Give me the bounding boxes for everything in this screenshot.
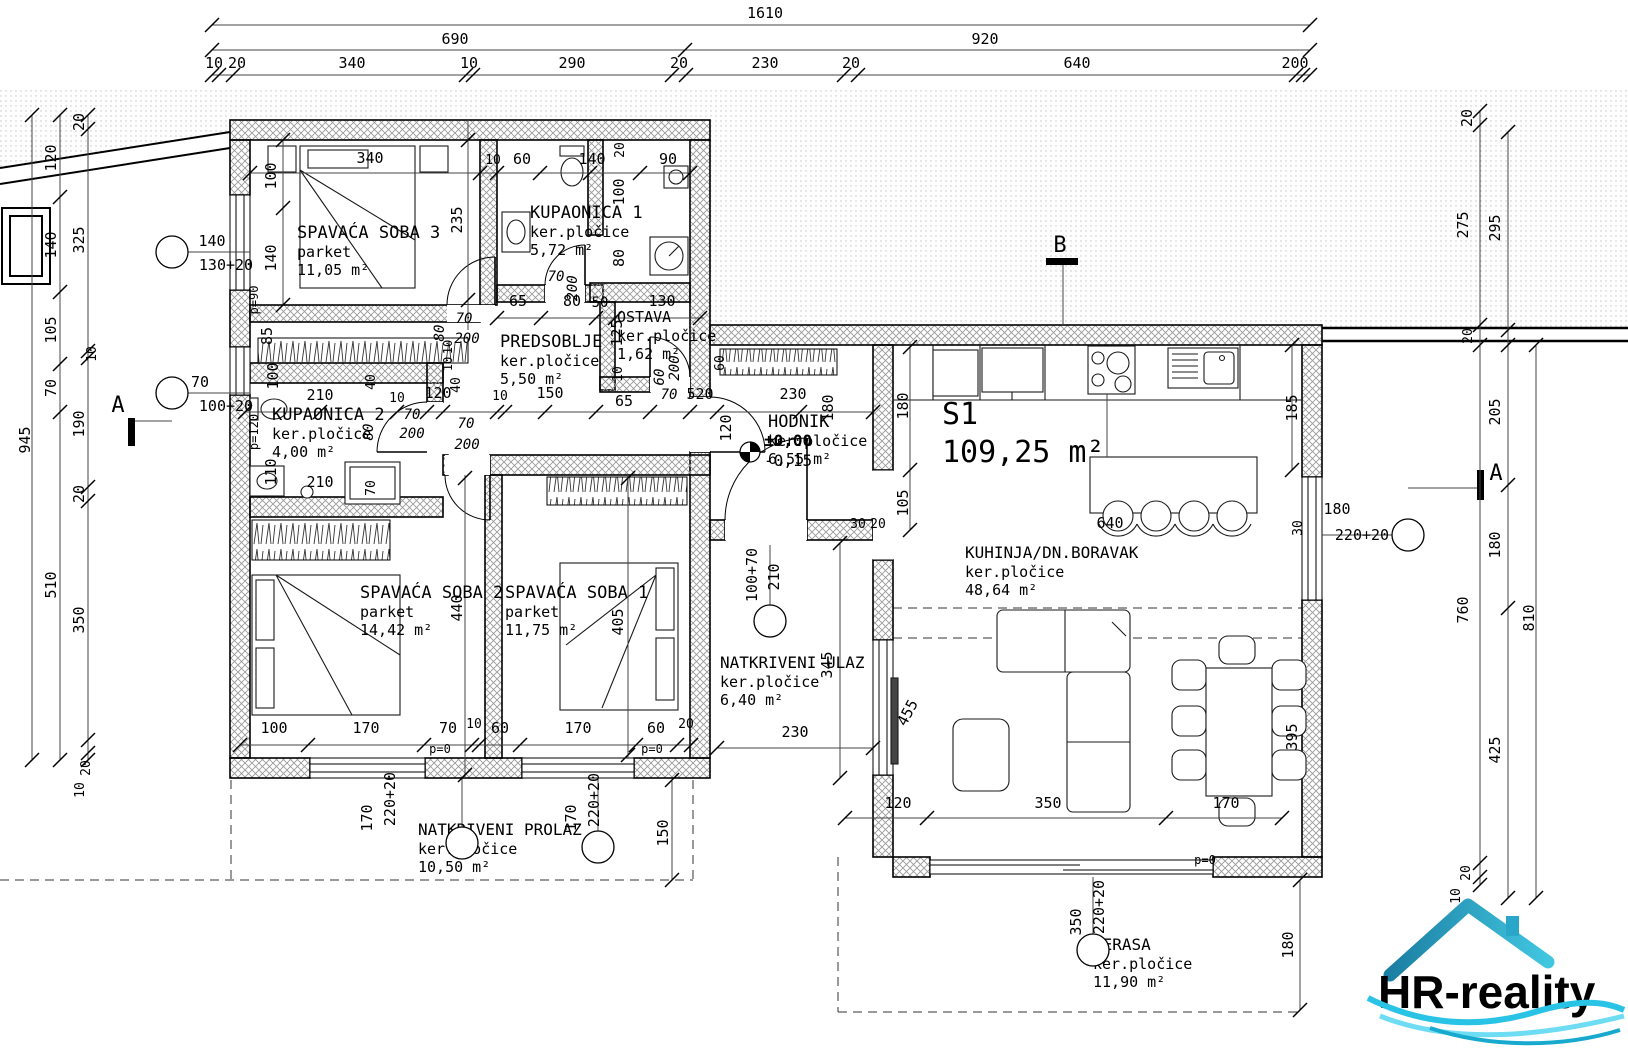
dim-label: 20 (228, 54, 246, 72)
position-marker-label: 350 (1067, 908, 1085, 935)
dim-label: 120 (717, 414, 735, 441)
dim-label: 60 (647, 719, 665, 737)
dim-label: 230 (751, 54, 778, 72)
dim-label: 20 (670, 54, 688, 72)
position-marker (582, 831, 614, 863)
position-marker-label: 220+20 (381, 772, 399, 826)
dim-label: 60 (652, 369, 668, 386)
room-area: 11,05 m² (297, 261, 369, 279)
dim-label: 140 (42, 231, 60, 258)
parapet-label: p=90 (247, 286, 261, 315)
dim-label: 105 (894, 489, 912, 516)
dim-label: 20 (613, 142, 628, 158)
dim-label: 190 (70, 410, 88, 437)
wardrobe-bedroom2 (252, 520, 390, 560)
dim-label: 120 (424, 384, 451, 402)
position-marker-label: 100+70 (743, 548, 761, 602)
dim-label: 810 (1520, 604, 1538, 631)
room-name: OSTAVA (617, 308, 671, 326)
terrace-sliding-door (930, 860, 1213, 874)
dim-label: 70 (364, 480, 379, 496)
dim-label: 20 (678, 717, 694, 732)
position-marker (156, 236, 188, 268)
window-livingroom-west (873, 640, 893, 775)
dim-label: 10 (73, 782, 88, 798)
dim-label: 100 (260, 719, 287, 737)
dim-label: 30 (850, 517, 866, 532)
room-name: KUPAONICA 2 (272, 405, 385, 425)
dim-label: 120 (884, 794, 911, 812)
room-area: 1,62 m² (617, 345, 680, 363)
dim-label: 80 (563, 292, 581, 310)
position-marker-label: 180 (1323, 500, 1350, 518)
window-bedroom2 (310, 758, 425, 778)
room-area: 5,72 m² (530, 241, 593, 259)
dim-label: 40 (364, 374, 379, 390)
logo-chimney-icon (1506, 916, 1519, 936)
dim-label: 20 (70, 485, 88, 503)
position-marker-label: 100+20 (199, 397, 253, 415)
dim-label: 180 (1486, 531, 1504, 558)
dim-label: 60 (513, 150, 531, 168)
dim-label: 205 (1486, 398, 1504, 425)
dim-label: 10 (85, 346, 100, 362)
dim-label: 425 (1486, 736, 1504, 763)
dim-label: 80 (610, 249, 628, 267)
window-bathroom2 (230, 347, 250, 395)
room-area: 5,50 m² (500, 370, 563, 388)
washing-machine (650, 237, 688, 275)
coffee-table (953, 719, 1009, 791)
room-name: KUHINJA/DN.BORAVAK (965, 543, 1139, 562)
dim-label: 510 (42, 571, 60, 598)
bar-stool (1141, 501, 1171, 531)
dim-label: 70 (458, 416, 475, 432)
dim-label: 120 (42, 144, 60, 171)
room-area: 48,64 m² (965, 581, 1037, 599)
window-bedroom3 (230, 195, 250, 290)
dim-label: 395 (1283, 723, 1301, 750)
dim-label: 10 (492, 389, 508, 404)
section-a-mark (128, 418, 135, 446)
chair (1172, 660, 1206, 690)
position-marker (446, 827, 478, 859)
dim-label: 210 (306, 386, 333, 404)
dim-label: 170 (352, 719, 379, 737)
dim-label: 170 (1212, 794, 1239, 812)
dim-label: 150 (654, 819, 672, 846)
room-material: ker.pločice (530, 223, 629, 241)
unit-name: S1 (942, 397, 978, 432)
section-b-mark (1046, 258, 1078, 265)
position-marker-label: 210 (765, 563, 783, 590)
dim-label: 100 (262, 162, 280, 189)
dim-label: 230 (781, 723, 808, 741)
parapet-label: p=0 (641, 742, 663, 756)
parapet-label: p=120 (247, 414, 261, 450)
room-material: parket (505, 603, 559, 621)
position-marker-label: 220+20 (1335, 526, 1389, 544)
chair (1219, 636, 1255, 664)
window-bedroom1 (522, 758, 634, 778)
room-name: PREDSOBLJE (500, 332, 602, 352)
room-material: parket (297, 243, 351, 261)
room-area: 14,42 m² (360, 621, 432, 639)
floor-plan-svg: HR-reality 16106909201020340102902023020… (0, 0, 1628, 1058)
dim-label: 20 (70, 113, 88, 131)
position-marker-label: 220+20 (585, 773, 603, 827)
fridge (933, 350, 978, 396)
logo-text: HR-reality (1378, 966, 1596, 1018)
room-material: ker.pločice (1093, 955, 1192, 973)
position-marker (156, 377, 188, 409)
wardrobe-hall (720, 349, 837, 375)
dim-label: 65 (509, 292, 527, 310)
position-marker-label: 70 (191, 373, 209, 391)
dim-label: 295 (1486, 214, 1504, 241)
dim-label: 70 (548, 269, 565, 285)
dim-label: 70 (439, 719, 457, 737)
chair (1272, 750, 1306, 780)
dim-label: 640 (1063, 54, 1090, 72)
wardrobe-bedroom1 (547, 477, 687, 505)
dim-label: 105 (42, 316, 60, 343)
dim-label: 50 (592, 295, 609, 311)
position-marker-label: 170 (358, 804, 376, 831)
dim-label: 210 (306, 473, 333, 491)
kitchen-sink (1168, 348, 1238, 388)
sink-bathroom1 (502, 212, 530, 252)
bar-stool (1217, 501, 1247, 531)
dim-label: 20 (842, 54, 860, 72)
position-marker-label: 220+20 (1090, 880, 1108, 934)
dim-label: 70 (404, 407, 421, 423)
dim-label: 100 (264, 362, 282, 389)
room-area: 6,40 m² (720, 691, 783, 709)
section-label: A (111, 393, 124, 418)
dim-label: 10 (611, 366, 626, 382)
dim-label: 180 (1279, 931, 1297, 958)
cabinet (982, 348, 1043, 392)
dim-label: 640 (1096, 514, 1123, 532)
kitchen-passage-opening (873, 470, 893, 560)
room-material: ker.pločice (500, 352, 599, 370)
dim-label: 340 (338, 54, 365, 72)
dim-label: 70 (456, 311, 473, 327)
position-marker (754, 605, 786, 637)
dim-label: 100 (610, 178, 628, 205)
room-name: HODNIK (768, 412, 830, 432)
dim-label: 235 (448, 206, 466, 233)
dim-label: 70 (661, 387, 678, 403)
dim-label: 30 (1291, 520, 1306, 536)
dim-label: 325 (70, 226, 88, 253)
dim-label: 760 (1454, 596, 1472, 623)
chair (1272, 660, 1306, 690)
dim-label: 60 (713, 355, 728, 371)
room-material: ker.pločice (965, 563, 1064, 581)
dim-label: 1610 (747, 4, 783, 22)
room-name: KUPAONICA 1 (530, 203, 643, 223)
dim-label: 200 (454, 331, 479, 347)
dim-label: 10 (485, 153, 501, 168)
dim-label: 10 (441, 357, 455, 371)
level-lower: -0,15 (764, 451, 812, 470)
dining-table (1206, 668, 1272, 796)
dim-label: 350 (1034, 794, 1061, 812)
dim-label: 65 (615, 392, 633, 410)
dim-label: 20 (79, 760, 94, 776)
dim-label: 90 (659, 150, 677, 168)
section-label: B (1053, 233, 1066, 258)
dim-label: 40 (449, 377, 464, 393)
room-material: ker.pločice (617, 327, 716, 345)
dim-label: 340 (356, 149, 383, 167)
dim-label: 20 (1461, 328, 1476, 344)
room-area: 11,90 m² (1093, 973, 1165, 991)
dim-label: 140 (262, 244, 280, 271)
dim-label: 275 (1454, 211, 1472, 238)
position-marker-label: 130+20 (199, 256, 253, 274)
dim-label: 110 (262, 458, 280, 485)
dim-label: 20 (870, 517, 886, 532)
room-area: 4,00 m² (272, 443, 335, 461)
dim-label: 690 (441, 30, 468, 48)
room-area: 11,75 m² (505, 621, 577, 639)
room-name: SPAVAĆA SOBA 2 (360, 581, 503, 603)
room-area: 10,50 m² (418, 858, 490, 876)
bar-stool (1179, 501, 1209, 531)
level-upper: ±0,00 (764, 431, 812, 450)
dim-label: 70 (42, 379, 60, 397)
dim-label: 80 (432, 325, 448, 342)
dim-label: 920 (971, 30, 998, 48)
room-material: ker.pločice (272, 425, 371, 443)
position-marker (1077, 934, 1109, 966)
section-label: A (1489, 461, 1502, 486)
dim-label: 60 (491, 719, 509, 737)
dim-label: 230 (779, 385, 806, 403)
position-marker (1392, 519, 1424, 551)
dim-label: 405 (609, 608, 627, 635)
unit-area: 109,25 m² (942, 435, 1105, 470)
dim-label: 20 (1459, 865, 1474, 881)
dim-label: 170 (564, 719, 591, 737)
position-marker-label: 140 (198, 232, 225, 250)
dim-label: 520 (686, 385, 713, 403)
dim-label: 200 (399, 426, 424, 442)
parapet-label: p=0 (1194, 853, 1216, 867)
dim-label: 200 (1281, 54, 1308, 72)
dim-label: 140 (578, 150, 605, 168)
dim-label: 20 (1458, 109, 1476, 127)
dim-label: 10 (205, 54, 223, 72)
position-marker-label: 170 (562, 804, 580, 831)
room-name: SPAVAĆA SOBA 1 (505, 581, 648, 603)
dim-label: 185 (1283, 394, 1301, 421)
dim-label: 10 (460, 54, 478, 72)
dim-label: 290 (558, 54, 585, 72)
room-material: parket (360, 603, 414, 621)
dim-label: 945 (16, 426, 34, 453)
stove (1088, 346, 1135, 394)
chair (1172, 750, 1206, 780)
parapet-label: p=0 (429, 742, 451, 756)
room-name: NATKRIVENI PROLAZ (418, 820, 582, 839)
dim-label: 350 (70, 606, 88, 633)
dim-label: 180 (894, 392, 912, 419)
floor-plan-page: HR-reality 16106909201020340102902023020… (0, 0, 1628, 1058)
dim-label: 10 (441, 340, 455, 354)
window-livingroom-east (1302, 477, 1322, 600)
room-material: ker.pločice (720, 673, 819, 691)
room-name: NATKRIVENI ULAZ (720, 653, 865, 672)
room-name: SPAVAĆA SOBA 3 (297, 221, 440, 243)
dim-label: 10 (466, 717, 482, 732)
boiler (664, 166, 688, 188)
dim-label: 200 (454, 437, 479, 453)
dim-label: 85 (258, 327, 276, 345)
dim-label: 10 (389, 391, 405, 406)
dim-label: 10 (1449, 888, 1464, 904)
chair (1172, 706, 1206, 736)
